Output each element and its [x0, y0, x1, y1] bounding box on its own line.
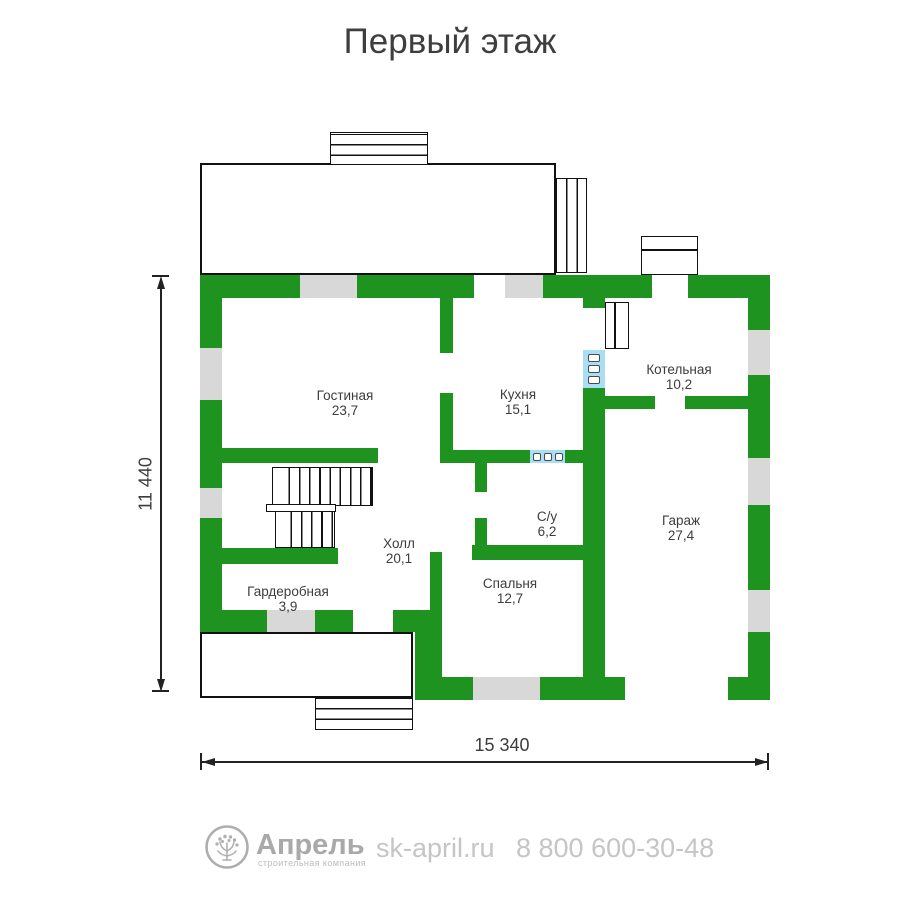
dimension-arrow-up: [157, 276, 165, 289]
room-name: Холл: [383, 536, 415, 551]
living-room-label: Гостиная 23,7: [317, 388, 374, 418]
room-name: Гостиная: [317, 388, 374, 403]
floor-plan-page: Первый этаж: [0, 0, 900, 900]
wall-segment: [200, 298, 222, 348]
wall-segment: [430, 552, 442, 625]
window: [748, 590, 770, 632]
garage-label: Гараж 27,4: [662, 513, 700, 543]
dimension-line-horizontal: [202, 761, 768, 763]
room-area: 10,2: [646, 377, 711, 392]
wall-segment: [748, 505, 770, 590]
room-area: 23,7: [317, 403, 374, 418]
wall-segment: [540, 677, 625, 700]
porch-step-line: [642, 249, 697, 251]
wall-segment: [475, 463, 487, 492]
wall-segment: [543, 275, 652, 298]
wall-segment: [222, 548, 338, 564]
wall-segment: [357, 275, 474, 298]
window: [200, 488, 222, 518]
glass-pane: [588, 365, 600, 373]
wardrobe-label: Гардеробная 3,9: [247, 584, 329, 614]
glass-pane: [588, 376, 600, 384]
door-leaf-line: [614, 303, 616, 348]
wall-segment: [200, 275, 300, 298]
window: [748, 330, 770, 375]
wall-segment: [200, 518, 222, 632]
boiler-room-label: Котельная 10,2: [646, 362, 711, 392]
wall-segment: [728, 677, 770, 700]
wall-segment: [200, 400, 222, 488]
room-name: Гараж: [662, 513, 700, 528]
dimension-tick: [152, 275, 169, 277]
bedroom-label: Спальня 12,7: [483, 576, 537, 606]
window: [200, 348, 222, 400]
bottom-porch: [200, 632, 413, 698]
bottom-porch-steps: [315, 698, 413, 730]
wall-segment: [583, 298, 605, 308]
room-name: Котельная: [646, 362, 711, 377]
wall-segment: [583, 388, 605, 677]
wall-segment: [688, 275, 770, 298]
glass-pane: [533, 453, 541, 461]
window: [748, 458, 770, 505]
wall-segment: [440, 298, 453, 353]
glass-pane: [555, 453, 563, 461]
terrace: [200, 163, 556, 275]
room-area: 12,7: [483, 591, 537, 606]
wall-segment: [222, 448, 378, 463]
dimension-tick: [200, 753, 202, 770]
room-name: Кухня: [500, 387, 536, 402]
dimension-tick: [767, 753, 769, 770]
room-area: 27,4: [662, 528, 700, 543]
dimension-label-height: 11 440: [136, 457, 157, 511]
room-area: 3,9: [247, 599, 329, 614]
window: [505, 275, 543, 298]
room-area: 20,1: [383, 551, 415, 566]
door-leaf: [605, 302, 629, 349]
staircase-lower-flight: [275, 511, 335, 548]
glass-pane: [544, 453, 552, 461]
page-title: Первый этаж: [344, 22, 557, 62]
boiler-entry-porch: [641, 236, 698, 275]
room-name: Гардеробная: [247, 584, 329, 599]
terrace-steps-right: [556, 178, 587, 273]
company-subtitle: строительная компания: [258, 858, 366, 868]
window: [473, 677, 540, 700]
kitchen-label: Кухня 15,1: [500, 387, 536, 417]
company-logo: [204, 824, 250, 870]
wall-segment: [685, 396, 748, 409]
website-link[interactable]: sk-april.ru: [376, 833, 495, 864]
wall-segment: [748, 375, 770, 458]
wall-segment: [415, 677, 473, 700]
wall-segment: [440, 450, 530, 463]
dimension-tick: [152, 690, 169, 692]
hall-label: Холл 20,1: [383, 536, 415, 566]
dimension-line-vertical: [160, 279, 162, 689]
tree-icon: [204, 824, 250, 870]
terrace-steps-top: [330, 132, 428, 165]
room-area: 15,1: [500, 402, 536, 417]
glazed-block: [530, 450, 565, 463]
glass-pane: [588, 354, 600, 362]
wall-segment: [472, 545, 583, 560]
dimension-arrow-left: [202, 758, 215, 766]
wall-segment: [605, 396, 655, 409]
wall-segment: [748, 298, 770, 330]
dimension-label-width: 15 340: [474, 735, 529, 756]
wall-segment: [415, 625, 442, 677]
room-name: Спальня: [483, 576, 537, 591]
room-name: С/у: [537, 509, 557, 524]
glazed-block: [583, 350, 605, 388]
staircase-upper-flight: [272, 467, 373, 506]
phone-number[interactable]: 8 800 600-30-48: [516, 833, 714, 864]
room-area: 6,2: [537, 524, 557, 539]
wall-segment: [565, 450, 583, 463]
bathroom-label: С/у 6,2: [537, 509, 557, 539]
window: [300, 275, 357, 298]
